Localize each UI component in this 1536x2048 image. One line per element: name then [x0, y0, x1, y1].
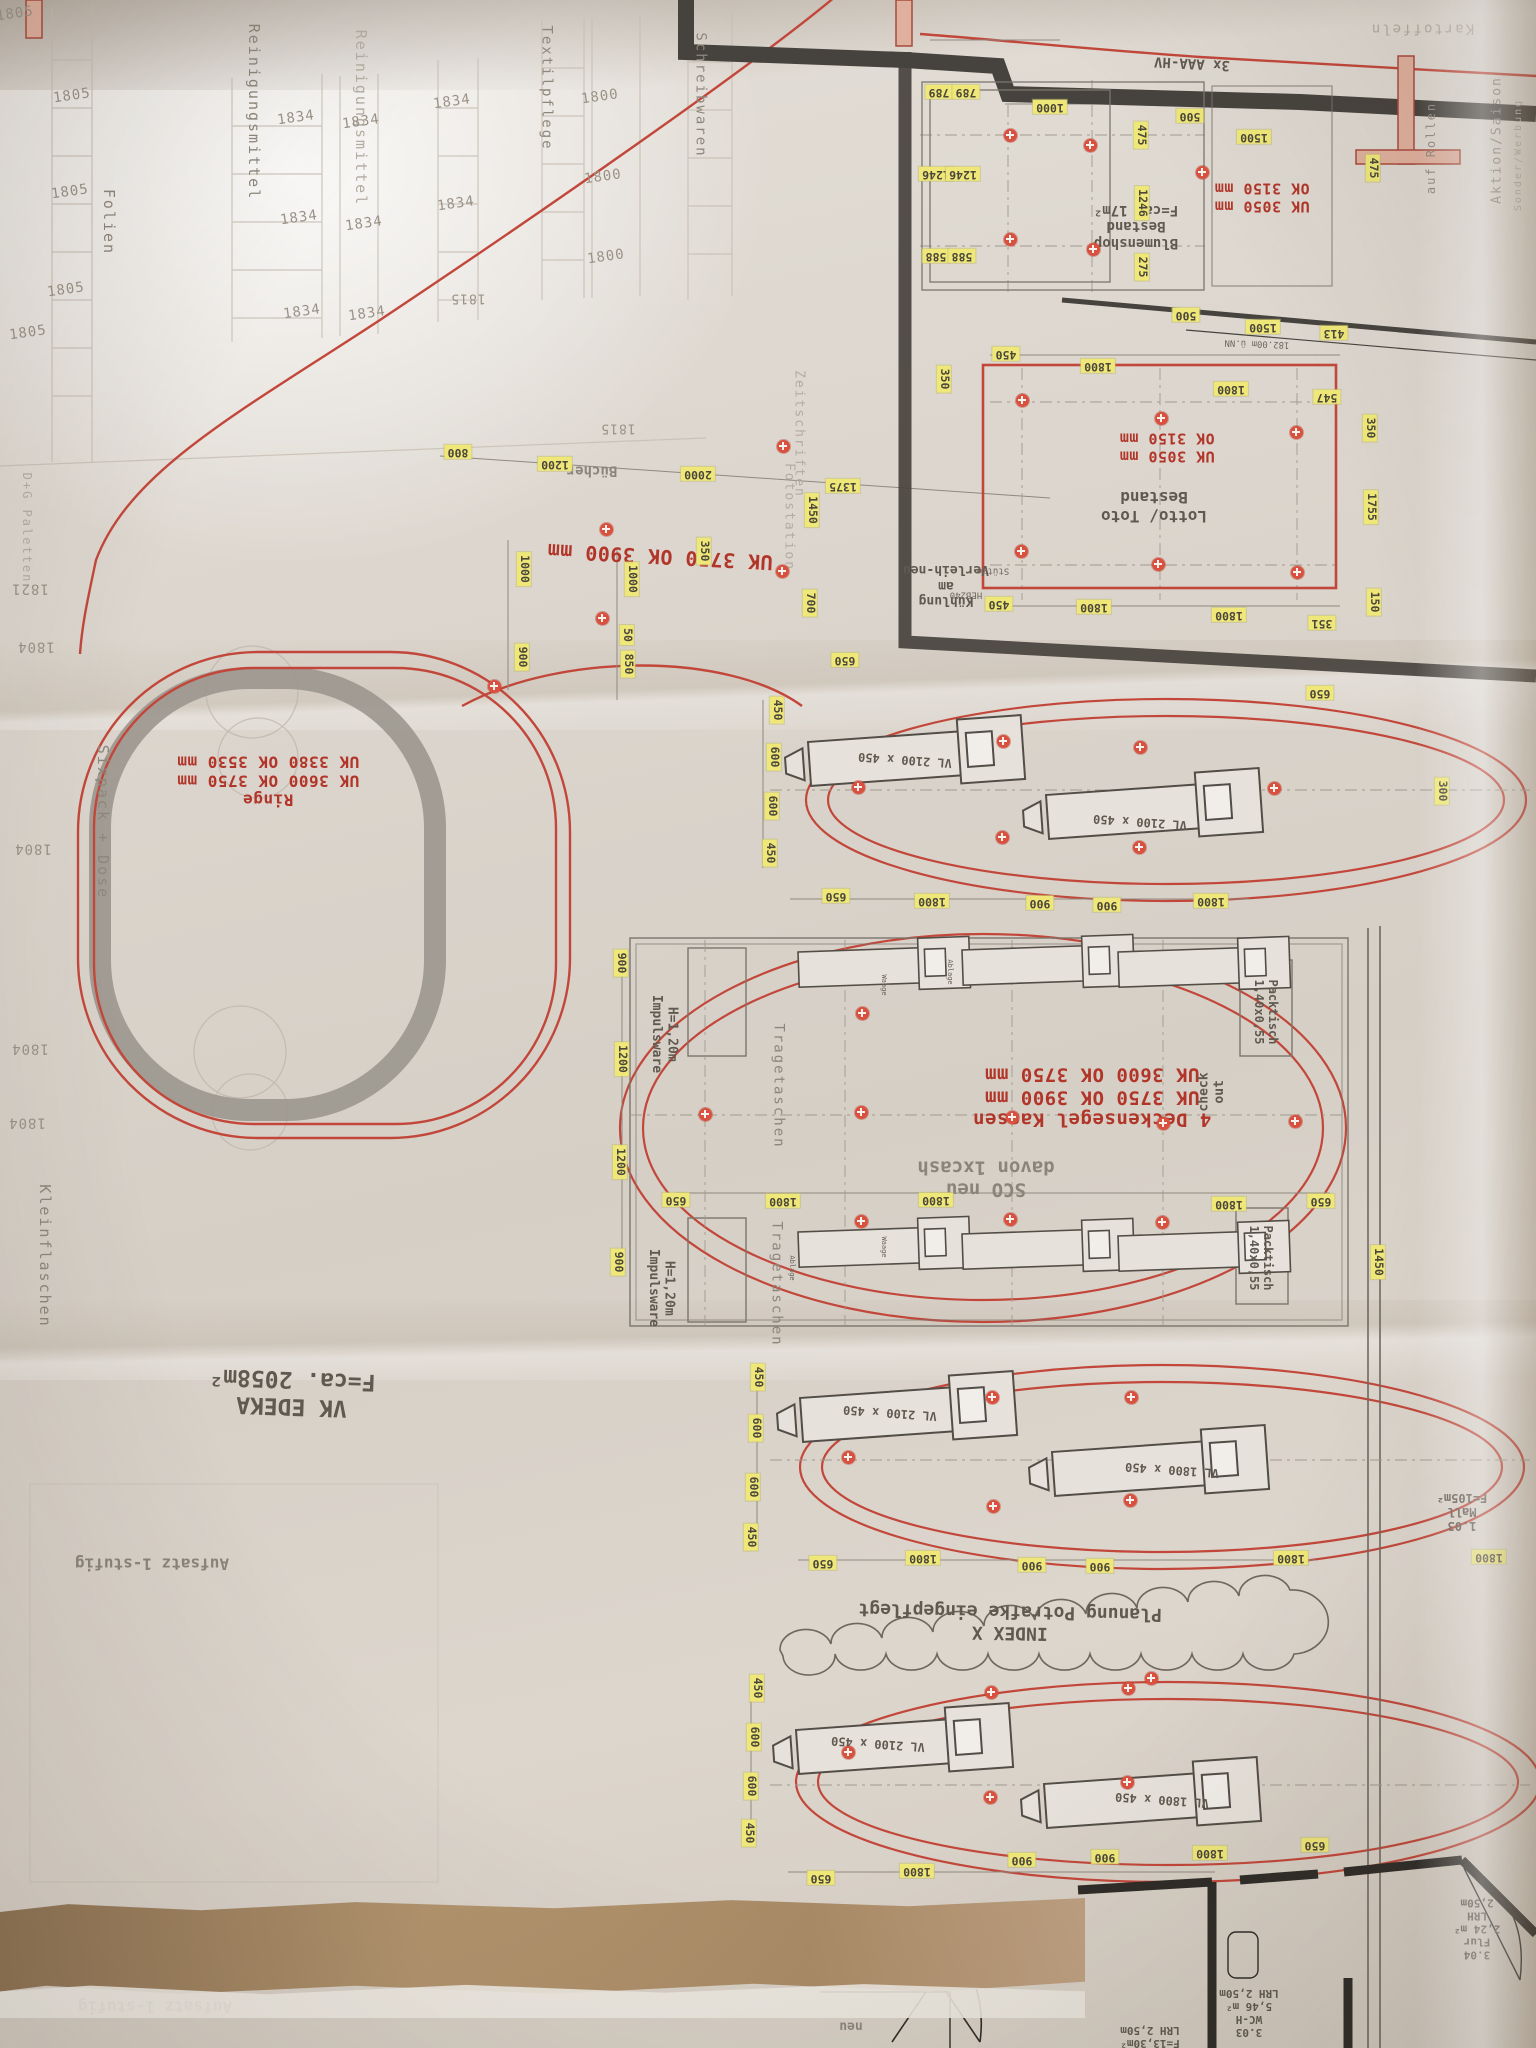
sprinkler-dot — [842, 1451, 855, 1464]
dimension-label: 650 — [810, 1556, 837, 1570]
sprinkler-dot — [1004, 129, 1017, 142]
dimension-label: 600 — [767, 744, 781, 771]
dimension-label: 900 — [611, 1249, 625, 1276]
dimension-label: 900 — [1009, 1853, 1036, 1867]
dept-reinigung: Reinigungsmittel — [244, 24, 262, 201]
sprinkler-dot — [1006, 1111, 1019, 1124]
dimension-label: 275 — [1135, 254, 1149, 281]
sprinkler-dot — [986, 1391, 999, 1404]
sprinkler-dot — [1084, 139, 1097, 152]
sprinkler-dot — [842, 1746, 855, 1759]
sprinkler-dot — [984, 1791, 997, 1804]
dimension-label: 475 — [1366, 155, 1380, 182]
sprinkler-dot — [1268, 782, 1281, 795]
waage-label: Waage — [880, 1236, 888, 1257]
dimension-label: 789 — [953, 85, 980, 99]
dimension-label: 900 — [614, 950, 628, 977]
height-note-blumenshop: UK 3050 mm OK 3150 mm — [1214, 179, 1309, 214]
rings-note: Ringe UK 3600 OK 3750 mm UK 3380 OK 3530… — [177, 752, 359, 809]
sprinkler-dot — [596, 612, 609, 625]
dept-tragetaschen: Tragetaschen — [768, 1221, 785, 1346]
dimension-label: 600 — [746, 1474, 760, 1501]
dimension-label: 1800 — [1212, 608, 1246, 622]
level-label: 182.00m ü.NN — [1224, 337, 1289, 350]
sprinkler-dot — [1155, 412, 1168, 425]
aufsatz-label: Aufsatz 1-stufig — [75, 1554, 229, 1573]
shelf-code: 1804 — [11, 1040, 49, 1057]
dimension-label: 1755 — [1364, 490, 1378, 524]
plan-linework — [0, 0, 1536, 2048]
dept-folien: Folien — [99, 189, 117, 255]
dimension-label: 450 — [770, 697, 784, 724]
dimension-label: 1000 — [517, 552, 531, 586]
dimension-label: 350 — [1363, 415, 1377, 442]
room-walls — [820, 1860, 1536, 2048]
dimension-label: 1800 — [1194, 894, 1228, 908]
dimension-label: 1450 — [805, 493, 819, 527]
dimension-label: 475 — [1134, 122, 1148, 149]
neu-label: neu — [839, 2018, 862, 2033]
dimension-label: 450 — [744, 1524, 758, 1551]
sprinkler-dot — [996, 831, 1009, 844]
sprinkler-dot — [1157, 1117, 1170, 1130]
dimension-label: 800 — [445, 445, 472, 459]
mall-label: 1.03 Mall F=105m² — [1437, 1491, 1488, 1533]
dimension-label: 900 — [1087, 1559, 1114, 1573]
room-wc: 3.03 WC-H 5,46 m² LRH 2,50m — [1219, 1986, 1279, 2038]
waage-label: Waage — [880, 974, 888, 995]
dimension-label: 1200 — [615, 1042, 629, 1076]
layout-circles — [194, 646, 298, 1150]
dimension-label: 1800 — [1472, 1550, 1506, 1564]
sprinkler-dot — [1152, 558, 1165, 571]
dept-textil: Textilpflege — [538, 25, 555, 150]
sprinkler-dot — [1015, 545, 1028, 558]
dimension-label: 450 — [986, 597, 1013, 611]
sprinkler-dot — [852, 781, 865, 794]
shelf-code: 1815 — [450, 290, 485, 305]
dimension-label: 1800 — [1212, 1197, 1246, 1211]
dimension-label: 1246 — [1135, 186, 1149, 220]
dimension-label: 650 — [808, 1871, 835, 1885]
dimension-label: 1500 — [1246, 320, 1280, 334]
checkout-label: check out — [1197, 1072, 1228, 1111]
shelf-code: 1821 — [11, 580, 49, 597]
sprinkler-dot — [1016, 394, 1029, 407]
sprinkler-dot — [776, 565, 789, 578]
dimension-label: 1800 — [1081, 359, 1115, 373]
shelf-code: 1815 — [600, 420, 635, 435]
room-area: F=13,30m² LRH 2,50m — [1120, 2023, 1180, 2048]
dimension-label: 900 — [1019, 1558, 1046, 1572]
aktion-saison-label: Aktion/Saison — [1489, 76, 1504, 204]
dimension-label: 1800 — [766, 1194, 800, 1208]
dimension-label: 1800 — [1214, 382, 1248, 396]
sprinkler-dot — [856, 1007, 869, 1020]
dimension-label: 500 — [1173, 308, 1200, 322]
dimension-label: 1800 — [900, 1864, 934, 1878]
dimension-label: 1000 — [625, 562, 639, 596]
shelf-code: 1804 — [14, 840, 52, 857]
dimension-label: 600 — [749, 1415, 763, 1442]
dimension-label: 1450 — [1371, 1245, 1385, 1279]
kartoffeln-label: Kartoffeln — [1370, 20, 1474, 37]
dimension-label: 150 — [1367, 589, 1381, 616]
dimension-label: 547 — [1314, 390, 1341, 404]
lotto-zone-rect — [983, 365, 1336, 588]
room-flur: 3.04 Flur 2,24 m² LRH 2,50m — [1448, 1896, 1507, 1961]
dimension-label: 789 — [926, 85, 953, 99]
sprinkler-dot — [488, 680, 501, 693]
dept-paletten: D+G Paletten — [20, 473, 34, 584]
height-note-lotto: UK 3050 mm OK 3150 mm — [1119, 429, 1214, 464]
dimension-label: 1246 — [946, 167, 980, 181]
dimension-label: 413 — [1321, 326, 1348, 340]
dept-tragetaschen: Tragetaschen — [770, 1023, 787, 1148]
dimension-label: 450 — [742, 1820, 756, 1847]
dept-fotostation: Fotostation — [781, 463, 796, 571]
checkout-zone-ellipses — [620, 699, 1536, 1882]
sprinkler-dot — [1122, 1682, 1135, 1695]
sprinkler-dot — [699, 1108, 712, 1121]
dimension-label: 650 — [1307, 686, 1334, 700]
dimension-label: 600 — [744, 1773, 758, 1800]
dimension-label: 350 — [697, 538, 711, 565]
dimension-label: 850 — [621, 651, 635, 678]
sprinkler-dot — [855, 1215, 868, 1228]
sprinkler-dot — [777, 440, 790, 453]
dimension-label: 1500 — [1237, 130, 1271, 144]
dimension-label: 1200 — [613, 1145, 627, 1179]
packtisch-label: Packtisch 1,40x0,55 — [1247, 1225, 1275, 1290]
dimension-label: 650 — [1302, 1838, 1329, 1852]
stuetze-label: Stütze — [977, 565, 1010, 576]
dimension-label: 650 — [832, 653, 859, 667]
floor-plan-photo: UK 3050 mm OK 3150 mmUK 3050 mm OK 3150 … — [0, 0, 1536, 2048]
dimension-label: 2000 — [681, 467, 715, 481]
sprinkler-dot — [1121, 1776, 1134, 1789]
ablage-label: Ablage — [946, 959, 954, 984]
sprinkler-dot — [985, 1686, 998, 1699]
impulsware-label: H=1,20m Impulsware — [649, 995, 680, 1073]
sales-area-label: VK EDEKA F=ca. 2058m² — [208, 1362, 376, 1422]
sprinkler-dot — [1289, 1115, 1302, 1128]
sprinkler-dot — [600, 523, 613, 536]
dimension-label: 450 — [763, 840, 777, 867]
aufsatz-label: Aufsatz 1-stufig — [78, 1997, 232, 2016]
dept-kleinflaschen: Kleinflaschen — [35, 1184, 53, 1327]
sprinkler-dot — [1124, 1494, 1137, 1507]
dimension-label: 350 — [937, 366, 951, 393]
dimension-label: 900 — [1094, 898, 1121, 912]
sprinkler-dot — [1291, 566, 1304, 579]
dimension-label: 1800 — [919, 1193, 953, 1207]
shelf-code: 1804 — [17, 638, 55, 655]
buecher-label: Bücher — [567, 462, 618, 479]
dimension-label: 700 — [803, 590, 817, 617]
sprinkler-dot — [1145, 1672, 1158, 1685]
sprinkler-dot — [855, 1106, 868, 1119]
sprinkler-dot — [1004, 233, 1017, 246]
dimension-label: 500 — [1177, 109, 1204, 123]
dimension-label: 600 — [747, 1724, 761, 1751]
sprinkler-dot — [1133, 841, 1146, 854]
dimension-label: 650 — [663, 1193, 690, 1207]
dept-sixpack: Sixpack + Dose — [93, 745, 111, 899]
dimension-label: 1800 — [1077, 600, 1111, 614]
sprinkler-dot — [1196, 166, 1209, 179]
dimension-label: 50 — [620, 625, 634, 645]
ablage-label: Ablage — [788, 1255, 796, 1280]
sprinkler-dot — [997, 735, 1010, 748]
dimension-label: 1000 — [1033, 100, 1067, 114]
auf-rollen-label: auf Rollen — [1424, 102, 1438, 194]
sonder-werbung-label: Sonder/Werbung — [1513, 99, 1525, 211]
dimension-label: 300 — [1435, 778, 1449, 805]
dimension-label: 900 — [515, 644, 529, 671]
dimension-label: 1800 — [1274, 1551, 1308, 1565]
sprinkler-dot — [1125, 1391, 1138, 1404]
sprinkler-dot — [1087, 243, 1100, 256]
dimension-label: 588 — [949, 249, 976, 263]
dimension-label: 1375 — [826, 479, 860, 493]
dimension-label: 588 — [923, 249, 950, 263]
dimension-label: 1200 — [538, 457, 572, 471]
impulsware-label: H=1,20m Impulsware — [646, 1249, 677, 1327]
dimension-label: 900 — [1027, 896, 1054, 910]
dimension-label: 450 — [750, 1675, 764, 1702]
dimension-label: 450 — [751, 1364, 765, 1391]
dimension-label: 1800 — [906, 1551, 940, 1565]
dimension-label: 600 — [765, 793, 779, 820]
dimension-label: 1800 — [915, 894, 949, 908]
sprinkler-dot — [1134, 741, 1147, 754]
revision-cloud-label: INDEX X Planung Potrafke eingepflegt — [858, 1598, 1162, 1646]
ring-fixture — [100, 678, 435, 1110]
dimension-label: 900 — [1092, 1850, 1119, 1864]
dimension-label: 650 — [823, 889, 850, 903]
beam-label: HEB240 — [950, 589, 983, 600]
sprinkler-dot — [1156, 1216, 1169, 1229]
sprinkler-dot — [1004, 1213, 1017, 1226]
packtisch-label: Packtisch 1,40x0,55 — [1252, 979, 1280, 1044]
dimension-label: 351 — [1309, 616, 1336, 630]
shelf-code: 1804 — [8, 1114, 46, 1131]
dimension-label: 1800 — [1193, 1846, 1227, 1860]
mall-boundary-line — [1368, 926, 1380, 2048]
lotto-label: Lotto/ Toto Bestand — [1101, 487, 1207, 525]
dept-schreibwaren: Schreibwaren — [692, 32, 709, 157]
sprinkler-dot — [987, 1500, 1000, 1513]
dimension-label: 450 — [993, 347, 1020, 361]
dimension-label: 650 — [1308, 1194, 1335, 1208]
sprinkler-dot — [1290, 426, 1303, 439]
